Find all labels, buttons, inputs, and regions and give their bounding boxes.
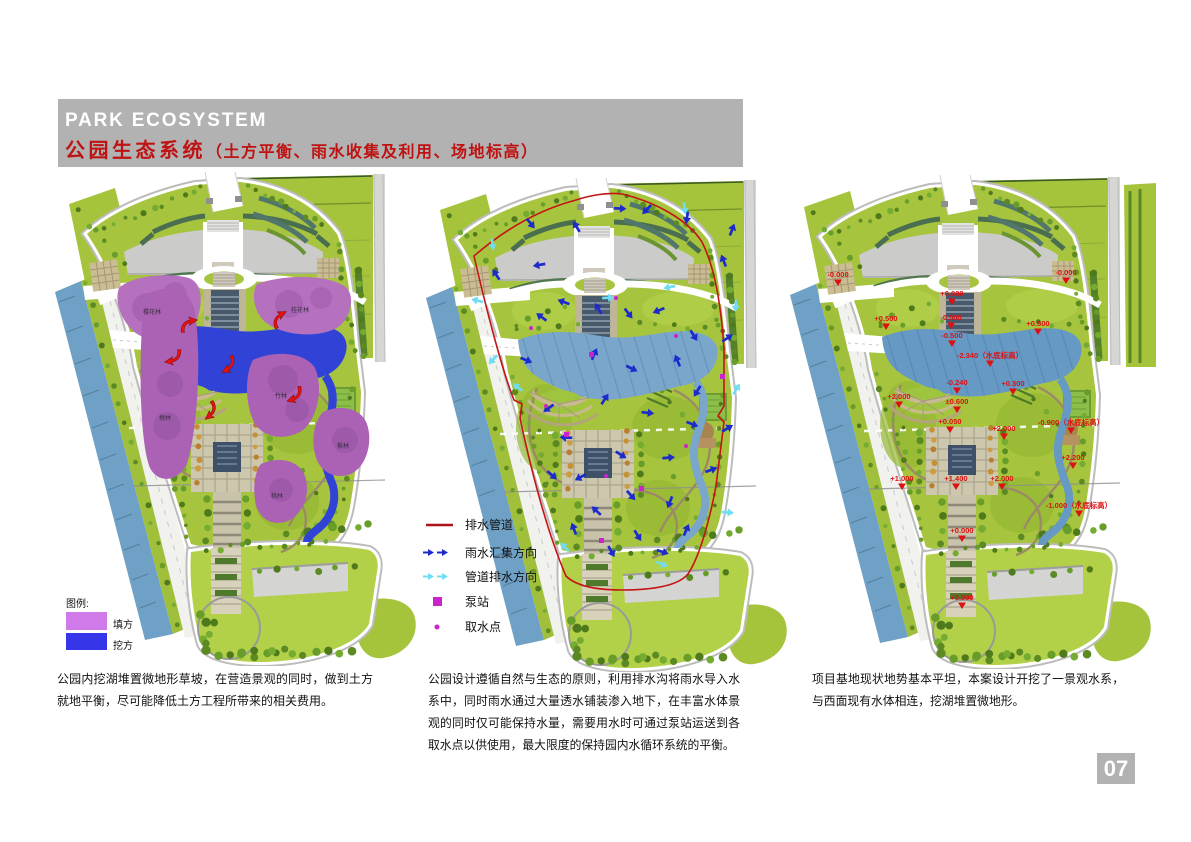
svg-text:±0.600: ±0.600 [946, 397, 969, 406]
svg-text:-0.500: -0.500 [941, 331, 962, 340]
svg-text:+0.300: +0.300 [1001, 379, 1024, 388]
svg-text:泵站: 泵站 [465, 595, 489, 609]
svg-text:+2.000: +2.000 [990, 474, 1013, 483]
svg-text:-0.000: -0.000 [1055, 268, 1076, 277]
svg-text:取水点: 取水点 [465, 620, 501, 634]
svg-text:-0.000: -0.000 [827, 270, 848, 279]
svg-text:雨水汇集方向: 雨水汇集方向 [465, 545, 537, 560]
svg-text:+2.000: +2.000 [887, 392, 910, 401]
svg-text:管道排水方向: 管道排水方向 [465, 569, 537, 584]
svg-text:+1.400: +1.400 [944, 474, 967, 483]
svg-text:梅林: 梅林 [159, 414, 171, 422]
svg-text:-0.900（水底标高）: -0.900（水底标高） [1038, 417, 1104, 427]
svg-text:-1.000（水底标高）: -1.000（水底标高） [1046, 500, 1112, 510]
svg-text:+0.000: +0.000 [950, 593, 973, 602]
svg-text:-2.340（水底标高）: -2.340（水底标高） [957, 350, 1023, 360]
svg-text:樱花林: 樱花林 [143, 308, 161, 316]
svg-text:竹林: 竹林 [275, 392, 287, 400]
svg-text:桂花林: 桂花林 [291, 306, 309, 314]
svg-text:+0.500: +0.500 [874, 314, 897, 323]
svg-text:-0.240: -0.240 [946, 378, 967, 387]
svg-text:+2.200: +2.200 [1061, 453, 1084, 462]
svg-text:排水管道: 排水管道 [465, 517, 513, 532]
svg-text:+1.000: +1.000 [890, 474, 913, 483]
svg-text:-0.500: -0.500 [940, 313, 961, 322]
svg-text:+0.000: +0.000 [940, 289, 963, 298]
svg-text:+0.050: +0.050 [938, 417, 961, 426]
svg-text:+0.000: +0.000 [950, 526, 973, 535]
svg-text:+2.000: +2.000 [992, 424, 1015, 433]
svg-text:枫林: 枫林 [337, 442, 349, 450]
svg-text:桃林: 桃林 [271, 492, 283, 500]
svg-text:+0.500: +0.500 [1026, 319, 1049, 328]
